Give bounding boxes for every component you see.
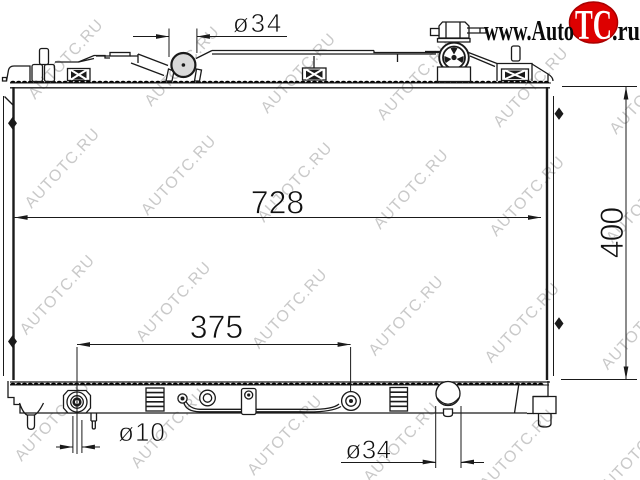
- svg-text:375: 375: [190, 309, 243, 345]
- svg-text:728: 728: [251, 185, 304, 221]
- svg-text:www.Auto: www.Auto: [484, 15, 574, 47]
- svg-text:ø10: ø10: [118, 417, 166, 447]
- svg-text:.ru: .ru: [612, 15, 640, 47]
- svg-text:ø34: ø34: [345, 435, 391, 465]
- svg-text:400: 400: [594, 208, 630, 259]
- svg-text:ø34: ø34: [233, 8, 283, 38]
- svg-text:TC: TC: [575, 3, 612, 49]
